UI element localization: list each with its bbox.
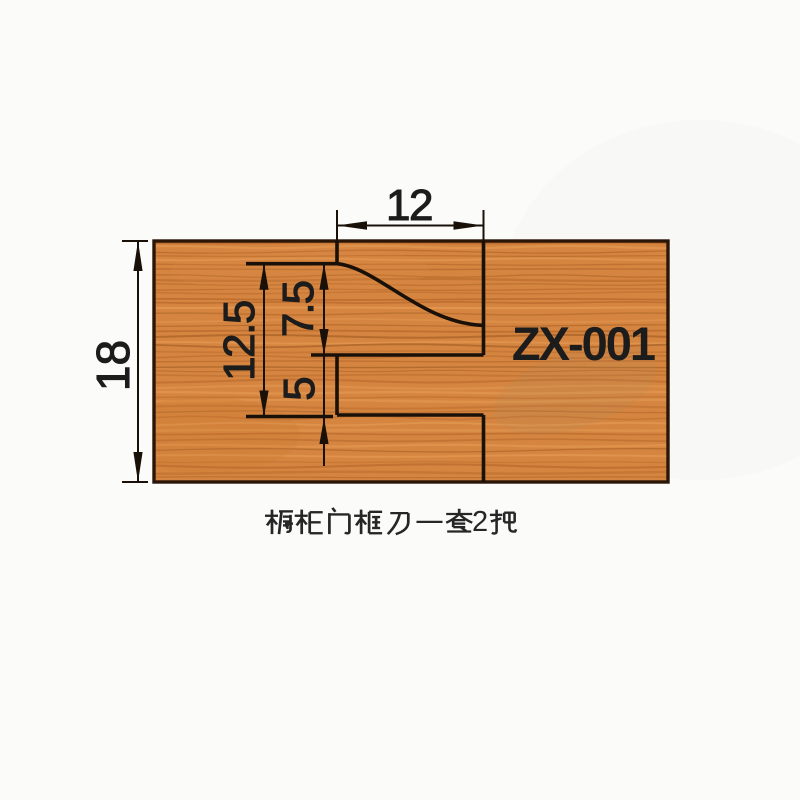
svg-text:5: 5 [275,376,324,400]
svg-text:2: 2 [472,506,488,538]
svg-text:12: 12 [386,181,432,230]
svg-text:12.5: 12.5 [215,301,264,381]
svg-text:7.5: 7.5 [274,281,323,337]
svg-text:18: 18 [87,340,139,391]
svg-text:ZX-001: ZX-001 [512,317,655,370]
